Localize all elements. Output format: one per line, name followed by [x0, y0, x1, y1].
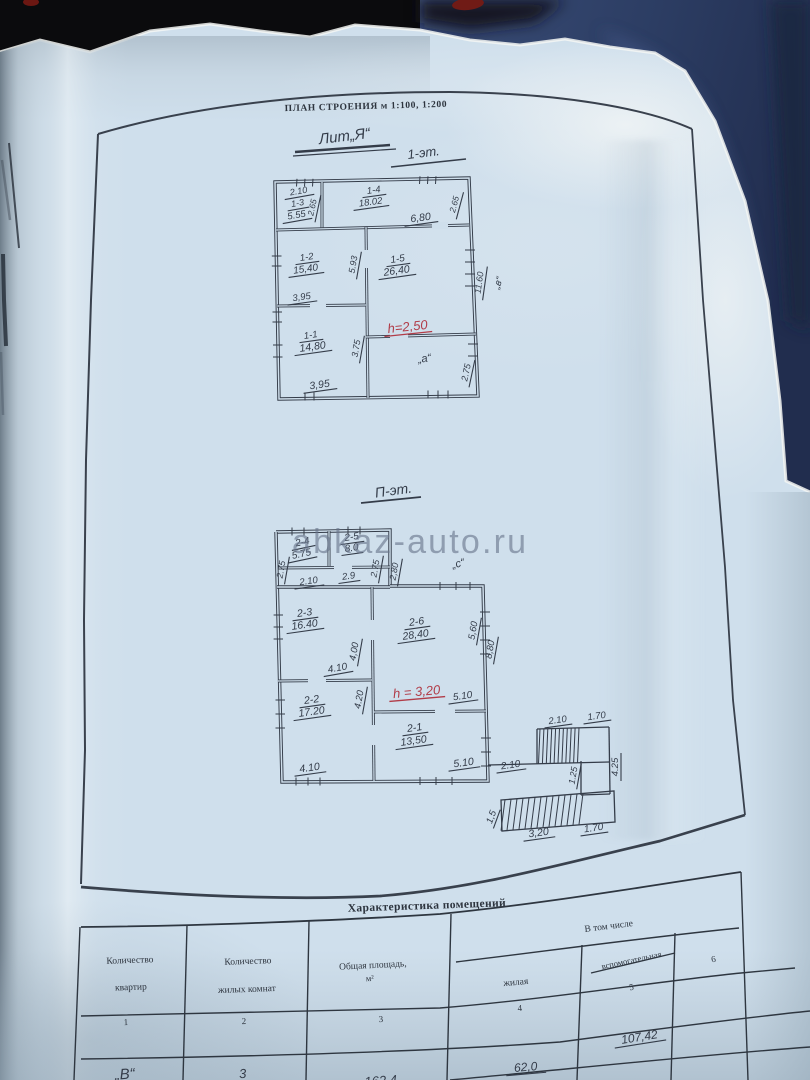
svg-text:Количество: Количество	[224, 956, 272, 968]
svg-text:квартир: квартир	[115, 982, 147, 993]
svg-text:2: 2	[241, 1016, 246, 1026]
svg-text:„В“: „В“	[113, 1065, 136, 1080]
svg-text:жилых комнат: жилых комнат	[217, 984, 277, 996]
svg-text:162,4: 162,4	[364, 1072, 398, 1080]
svg-text:abkaz-auto.ru: abkaz-auto.ru	[292, 523, 526, 561]
svg-text:1: 1	[123, 1017, 128, 1027]
svg-text:м²: м²	[366, 973, 375, 983]
svg-text:62,0: 62,0	[513, 1059, 538, 1075]
svg-text:4.25: 4.25	[610, 757, 621, 776]
svg-text:3: 3	[378, 1014, 383, 1024]
svg-text:Количество: Количество	[106, 955, 154, 967]
